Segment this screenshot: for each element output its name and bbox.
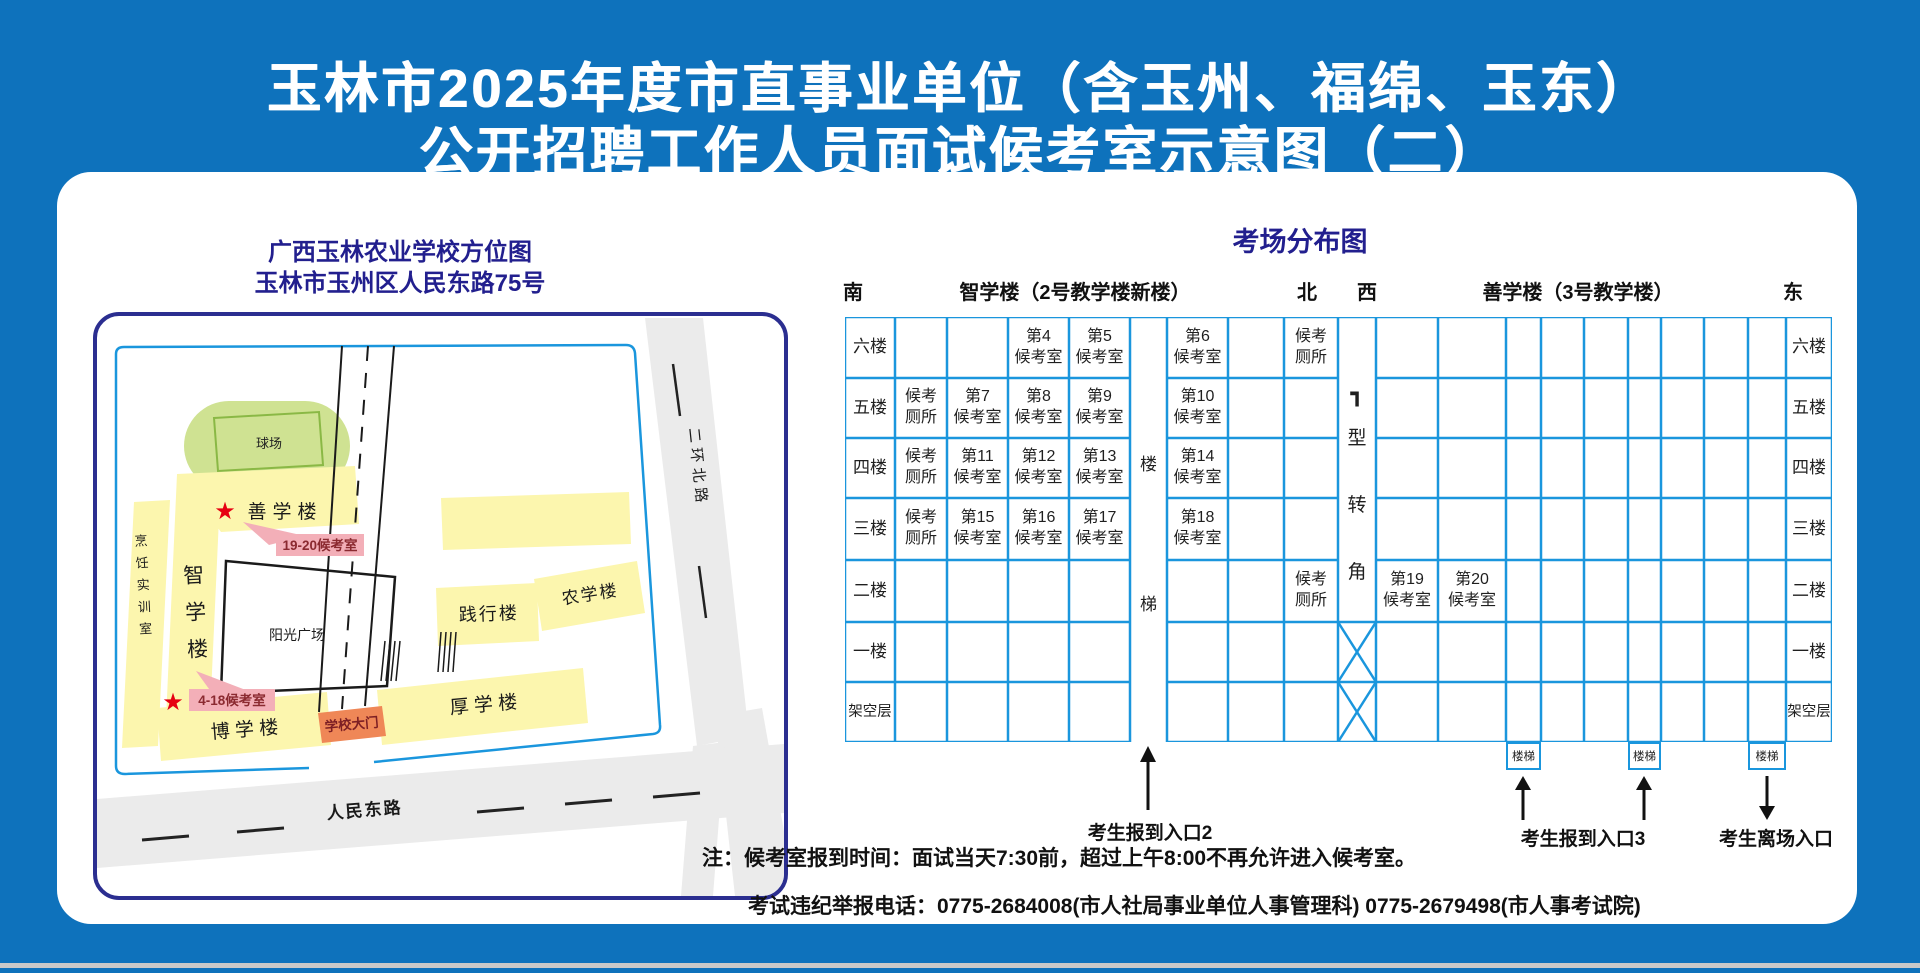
jianxing-label: 践行楼: [458, 603, 519, 625]
floor-label: 五楼: [1787, 379, 1831, 437]
entrance2-label: 考生报到入口2: [1088, 818, 1213, 845]
star-icon: ★: [162, 689, 184, 716]
stair-box-2: 楼梯: [1628, 742, 1661, 770]
campus-map: 球场 19-20候考室 4-18候考室 ★: [93, 312, 788, 900]
grid-cell: 第11 候考室: [948, 439, 1007, 497]
grid-cell: 第8 候考室: [1009, 379, 1068, 437]
floor-label: 四楼: [846, 439, 894, 497]
note-hotline: 考试违纪举报电话：0775-2684008(市人社局事业单位人事管理科) 077…: [748, 890, 1641, 920]
floor-label: 架空层: [1787, 683, 1831, 741]
grid-cell: 第13 候考室: [1070, 439, 1129, 497]
corner-label: 转: [1338, 492, 1376, 520]
note-report-time: 注：候考室报到时间：面试当天7:30前，超过上午8:00不再允许进入候考室。: [702, 842, 1416, 872]
entrance3-up-arrow-icon: [1632, 776, 1656, 822]
grid-cell: 第6 候考室: [1168, 318, 1227, 377]
grid-cell: 第7 候考室: [948, 379, 1007, 437]
grid-cell: 第15 候考室: [948, 499, 1007, 559]
floor-label: 一楼: [1787, 623, 1831, 681]
grid-cell: 第4 候考室: [1009, 318, 1068, 377]
grid-cell: 第18 候考室: [1168, 499, 1227, 559]
star-icon: ★: [214, 498, 236, 525]
room-grid: 第4 候考室第5 候考室第6 候考室候考 厕所六楼六楼候考 厕所第7 候考室第8…: [845, 317, 1832, 742]
entrance3-up-arrow-icon: [1511, 776, 1535, 822]
grid-cell: 第9 候考室: [1070, 379, 1129, 437]
corner-label: 角: [1338, 559, 1376, 587]
grid-cell: 第12 候考室: [1009, 439, 1068, 497]
stair-box-3: 楼梯: [1748, 742, 1786, 770]
floor-label: 三楼: [846, 499, 894, 559]
compass-east: 东: [1783, 276, 1803, 305]
grid-cell: 第17 候考室: [1070, 499, 1129, 559]
floor-label: 六楼: [1787, 318, 1831, 377]
zhixue-vertical-label: 智学楼: [176, 563, 212, 675]
building-right-header: 善学楼（3号教学楼）: [1482, 276, 1673, 305]
compass-west: 西: [1357, 276, 1377, 305]
grid-cell: 第10 候考室: [1168, 379, 1227, 437]
map-title: 广西玉林农业学校方位图: [170, 232, 630, 267]
stair-box-1: 楼梯: [1506, 742, 1541, 770]
compass-south: 南: [843, 276, 863, 305]
stair-column-label: 楼: [1130, 450, 1167, 480]
floor-label: 一楼: [846, 623, 894, 681]
floor-label: 六楼: [846, 318, 894, 377]
floor-label: 二楼: [1787, 561, 1831, 621]
stair-column-label: 梯: [1130, 590, 1167, 620]
grid-cell: 候考 厕所: [896, 439, 946, 497]
grid-cell: 第16 候考室: [1009, 499, 1068, 559]
plaza-label: 阳光广场: [269, 627, 325, 643]
poster-page: { "title": { "line1": "玉林市2025年度市直事业单位（含…: [0, 0, 1920, 973]
grid-cell: 候考 厕所: [896, 499, 946, 559]
bottom-edge-strip: [0, 963, 1920, 968]
floor-label: 五楼: [846, 379, 894, 437]
floor-label: 架空层: [846, 683, 894, 741]
floor-label: 二楼: [846, 561, 894, 621]
rooms-19-20-label: 19-20候考室: [282, 537, 358, 553]
sports-field-label: 球场: [256, 436, 282, 451]
crossing-hatch: [381, 632, 456, 681]
exit-label: 考生离场入口: [1719, 824, 1833, 851]
exit-down-arrow-icon: [1755, 776, 1779, 822]
compass-north: 北: [1297, 276, 1317, 305]
floor-label: 四楼: [1787, 439, 1831, 497]
unnamed-building: [441, 492, 631, 550]
grid-cell: 候考 厕所: [896, 379, 946, 437]
floor-label: 三楼: [1787, 499, 1831, 559]
grid-cell: 候考 厕所: [1285, 318, 1337, 377]
renmin-road-shape: [97, 744, 784, 868]
map-address: 玉林市玉州区人民东路75号: [170, 263, 630, 298]
shanxue-label: 善学楼: [247, 501, 322, 523]
distribution-title: 考场分布图: [1233, 220, 1368, 259]
grid-cell: 第5 候考室: [1070, 318, 1129, 377]
grid-cell: 第20 候考室: [1439, 561, 1505, 621]
corner-label: 型: [1338, 425, 1376, 453]
grid-cell: 第14 候考室: [1168, 439, 1227, 497]
rooms-4-18-label: 4-18候考室: [198, 692, 266, 708]
grid-cell: 候考 厕所: [1285, 561, 1337, 621]
grid-cell: 第19 候考室: [1377, 561, 1437, 621]
entrance2-up-arrow-icon: [1136, 746, 1160, 812]
building-left-header: 智学楼（2号教学楼新楼）: [959, 276, 1190, 305]
entrance3-label: 考生报到入口3: [1521, 824, 1646, 851]
corner-symbol: ┓: [1338, 379, 1376, 409]
erhuan-road-shape: [645, 318, 749, 746]
